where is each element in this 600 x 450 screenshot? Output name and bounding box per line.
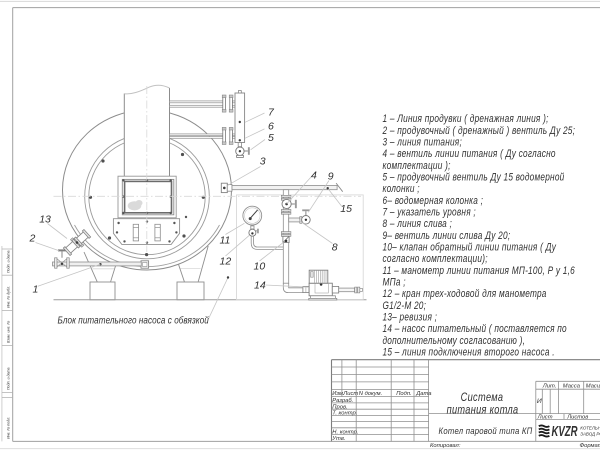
svg-text:14 – насос питательный ( пост: 14 – насос питательный ( поставляется по: [383, 323, 567, 335]
svg-text:Масш: Масш: [586, 384, 600, 390]
svg-text:Система: Система: [461, 392, 504, 404]
svg-text:Лит.: Лит.: [542, 384, 557, 390]
svg-text:Н. контр.: Н. контр.: [332, 430, 358, 436]
svg-text:питания котла: питания котла: [447, 405, 519, 417]
svg-text:Копировал:: Копировал:: [430, 443, 461, 449]
svg-text:2: 2: [29, 232, 36, 244]
svg-text:1: 1: [33, 284, 39, 296]
svg-text:11: 11: [220, 234, 231, 246]
svg-text:Блок питательного насоса с обв: Блок питательного насоса с обвязкой: [58, 315, 209, 326]
svg-text:14: 14: [254, 279, 266, 291]
svg-text:ЗАВОД РОСС: ЗАВОД РОСС: [580, 432, 600, 437]
svg-text:дополнительному согласованию ): дополнительному согласованию ),: [383, 335, 526, 347]
svg-text:10: 10: [254, 261, 266, 273]
svg-text:13: 13: [39, 214, 51, 226]
svg-text:Подп. и дата: Подп. и дата: [6, 368, 10, 391]
svg-text:6: 6: [268, 120, 274, 132]
svg-text:15: 15: [340, 203, 352, 215]
svg-text:Лист: Лист: [537, 414, 553, 420]
svg-text:Подп.: Подп.: [396, 391, 411, 397]
svg-text:12: 12: [220, 255, 232, 267]
svg-text:Инв. № дубл.: Инв. № дубл.: [6, 286, 10, 308]
svg-text:4: 4: [311, 170, 317, 182]
svg-text:1 – Линия продувки ( дренажна: 1 – Линия продувки ( дренажная линия );: [383, 113, 549, 125]
svg-text:Масса: Масса: [563, 384, 581, 390]
svg-text:комплектации );: комплектации );: [383, 160, 451, 172]
svg-text:6– водомерная колонка ;: 6– водомерная колонка ;: [383, 195, 484, 207]
svg-text:согласно комплектации);: согласно комплектации);: [383, 253, 488, 265]
svg-text:Формат: Формат: [580, 443, 600, 449]
svg-text:Лист: Лист: [342, 391, 358, 397]
svg-text:2 – продувочный ( дренажный ): 2 – продувочный ( дренажный ) вентиль Ду…: [382, 125, 576, 137]
svg-text:12 – кран трех-ходовой для ма: 12 – кран трех-ходовой для манометра: [383, 288, 547, 300]
svg-text:Листов: Листов: [566, 414, 588, 420]
svg-text:9– вентиль линии слива Ду 20;: 9– вентиль линии слива Ду 20;: [383, 230, 511, 242]
svg-text:G1/2-М 20;: G1/2-М 20;: [383, 300, 427, 312]
svg-text:10– клапан обратный линии пит: 10– клапан обратный линии питания ( Ду: [383, 242, 557, 254]
svg-text:Дата: Дата: [415, 391, 432, 397]
svg-text:5: 5: [268, 132, 274, 144]
svg-text:13– ревизия ;: 13– ревизия ;: [383, 312, 438, 324]
svg-text:8: 8: [332, 242, 338, 254]
svg-text:5 – продувочный вентиль Ду 15: 5 – продувочный вентиль Ду 15 водомерной: [383, 172, 565, 184]
svg-text:4 – вентиль линии питания ( Д: 4 – вентиль линии питания ( Ду согласно: [383, 148, 556, 160]
svg-text:3: 3: [260, 155, 266, 167]
svg-text:11 – манометр линии питания М: 11 – манометр линии питания МП-100, Р у …: [383, 265, 576, 277]
svg-text:Инв. № подл.: Инв. № подл.: [6, 417, 10, 439]
svg-text:колонки ;: колонки ;: [383, 183, 420, 195]
svg-text:15 – линия подключения второг: 15 – линия подключения второго насоса .: [383, 347, 555, 359]
svg-text:N докум.: N докум.: [359, 391, 382, 397]
svg-text:Взам. инв. №: Взам. инв. №: [6, 321, 10, 343]
svg-text:Подп. и дата: Подп. и дата: [6, 251, 10, 274]
svg-text:Т. контр.: Т. контр.: [332, 411, 357, 417]
svg-text:МПа ;: МПа ;: [383, 277, 406, 289]
svg-text:Котел паровой типа КП: Котел паровой типа КП: [439, 425, 533, 436]
svg-text:Разраб.: Разраб.: [332, 398, 353, 404]
svg-text:9: 9: [328, 170, 334, 182]
svg-text:7 – указатель уровня ;: 7 – указатель уровня ;: [383, 207, 476, 219]
svg-text:Утв.: Утв.: [331, 436, 345, 442]
svg-text:И: И: [537, 398, 542, 405]
svg-text:КОТЕЛЬНЫЙ: КОТЕЛЬНЫЙ: [580, 425, 600, 430]
svg-text:KVZR: KVZR: [552, 424, 578, 440]
svg-text:3 – линия питания;: 3 – линия питания;: [383, 137, 463, 149]
svg-text:8 – линия слива ;: 8 – линия слива ;: [383, 218, 453, 230]
svg-text:Пров.: Пров.: [332, 404, 347, 410]
